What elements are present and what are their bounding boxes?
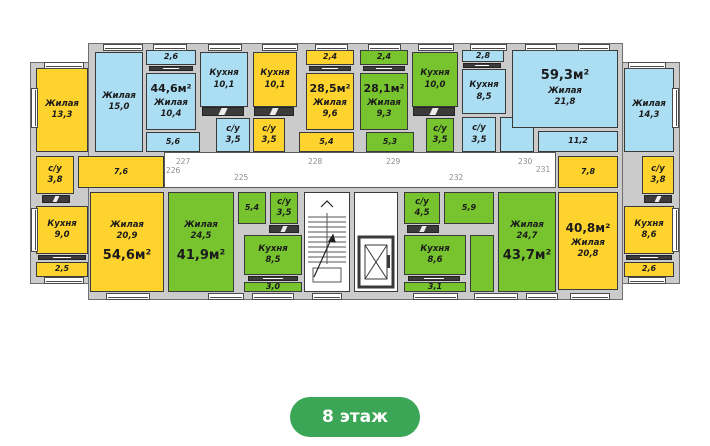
room-label: с/у [48, 164, 62, 175]
apt-593-balcony[interactable]: 2,8 [462, 50, 504, 62]
apt-593-hall[interactable]: 11,2 [538, 131, 618, 152]
room-label: Жилая [110, 220, 144, 231]
room-area: 5,9 [462, 204, 476, 213]
apt-281-balcony[interactable]: 2,4 [360, 50, 408, 65]
apt-446-living2[interactable]: 44,6м² Жилая 10,4 [146, 73, 196, 130]
window [312, 293, 342, 300]
apt-437-balcony[interactable]: 3,1 [404, 282, 466, 292]
room-area: 8,5 [476, 92, 491, 103]
room-area: 14,3 [639, 110, 660, 121]
room-label: Кухня [47, 219, 76, 230]
room-label: с/у [651, 164, 665, 175]
window [628, 277, 666, 284]
apt-285-living[interactable]: 28,5м² Жилая 9,6 [306, 73, 354, 130]
corridor-number-230: 230 [518, 157, 532, 166]
room-area: 3,5 [261, 135, 276, 146]
window [103, 44, 143, 51]
room-label: Жилая [313, 98, 347, 109]
apt-419-total: 41,9м² [177, 249, 225, 264]
apt-437-total: 43,7м² [503, 249, 551, 264]
apt-285-hall[interactable]: 5,4 [299, 132, 354, 152]
window [262, 44, 298, 51]
room-label: Кухня [258, 244, 287, 255]
room-label: с/у [262, 124, 276, 135]
apt-419-living[interactable]: Жилая 24,5 41,9м² [168, 192, 234, 292]
room-area: 21,8 [555, 97, 576, 108]
room-label: с/у [472, 123, 486, 134]
room-area: 5,4 [245, 204, 259, 213]
apt-546-balcony[interactable]: 2,5 [36, 262, 88, 277]
room-label: с/у [277, 197, 291, 208]
window [474, 293, 518, 300]
room-area: 10,1 [265, 80, 286, 91]
room-area: 10,0 [425, 80, 446, 91]
apt-546-kitchen[interactable]: Кухня 9,0 [36, 206, 88, 254]
room-area: 15,0 [109, 102, 130, 113]
room-label: Кухня [420, 68, 449, 79]
balcony-door-bar [408, 276, 460, 281]
corridor-number-228: 228 [308, 157, 322, 166]
window [578, 44, 610, 51]
apt-593-kitchen[interactable]: Кухня 8,5 [462, 69, 506, 114]
window [44, 277, 84, 284]
room-label: Жилая [154, 98, 188, 109]
apt-446-su[interactable]: с/у 3,5 [216, 118, 250, 152]
apt-593-living1[interactable]: 59,3м² Жилая 21,8 [512, 50, 618, 128]
corridor-number-226: 226 [166, 166, 180, 175]
room-area: 7,6 [114, 168, 128, 177]
room-area: 8,5 [265, 255, 280, 266]
apt-419-hall[interactable]: 5,4 [238, 192, 266, 224]
corridor-number-227: 227 [176, 157, 190, 166]
room-area: 10,4 [161, 109, 182, 120]
window [208, 44, 242, 51]
apt-546-total: 54,6м² [103, 249, 151, 264]
balcony-door-bar [363, 66, 405, 71]
balcony-door-bar [309, 66, 351, 71]
apt-419-kitchen[interactable]: Кухня 8,5 [244, 235, 302, 275]
staircase-icon [305, 193, 349, 291]
vent-sill [42, 195, 70, 203]
apt-546-living1[interactable]: Жилая 13,3 [36, 68, 88, 152]
room-area: 3,1 [428, 283, 442, 292]
balcony-door-bar [463, 63, 501, 68]
window [628, 62, 666, 69]
apt-546-hall[interactable]: 7,6 [78, 156, 164, 188]
room-label: Жилая [632, 99, 666, 110]
corridor-number-232: 232 [449, 173, 463, 182]
apt-419-balcony[interactable]: 3,0 [244, 282, 302, 292]
room-area: 2,6 [164, 53, 178, 62]
room-area: 10,1 [214, 80, 235, 91]
window [31, 88, 38, 128]
apt-285-total: 28,5м² [310, 83, 351, 96]
apt-437-kitchen[interactable]: Кухня 8,6 [404, 235, 466, 275]
corridor-number-229: 229 [386, 157, 400, 166]
window [470, 44, 507, 51]
window [252, 293, 294, 300]
room-area: 3,5 [432, 135, 447, 146]
balcony-door-bar [248, 276, 298, 281]
room-area: 3,5 [471, 135, 486, 146]
apt-408-kitchen[interactable]: Кухня 8,6 [624, 206, 674, 254]
window [44, 62, 84, 69]
apt-593-living2[interactable]: Жилая 14,3 [624, 68, 674, 152]
room-label: Кухня [634, 219, 663, 230]
apt-281-su[interactable]: с/у 3,5 [426, 118, 454, 152]
room-area: 4,5 [414, 208, 429, 219]
apt-446-living1[interactable]: Жилая 15,0 [95, 52, 143, 152]
room-area: 3,5 [276, 208, 291, 219]
room-area: 9,0 [54, 230, 69, 241]
room-area: 9,6 [322, 109, 337, 120]
apt-593-su[interactable]: с/у 3,5 [462, 117, 496, 152]
room-area: 2,8 [476, 52, 490, 61]
room-label: Жилая [548, 86, 582, 97]
room-area: 3,8 [650, 175, 665, 186]
apt-446-balcony[interactable]: 2,6 [146, 50, 196, 65]
apt-285-su[interactable]: с/у 3,5 [253, 118, 285, 152]
apt-281-living[interactable]: 28,1м² Жилая 9,3 [360, 73, 408, 130]
room-area: 2,6 [642, 265, 656, 274]
window [153, 44, 187, 51]
apt-437-hall[interactable]: 5,9 [444, 192, 494, 224]
room-area: 5,6 [166, 138, 180, 147]
balcony-door-bar [626, 255, 672, 260]
room-label: Жилая [367, 98, 401, 109]
apt-281-hall[interactable]: 5,3 [366, 132, 414, 152]
window [208, 293, 244, 300]
apt-408-balcony[interactable]: 2,6 [624, 262, 674, 277]
room-area: 3,8 [47, 175, 62, 186]
window [672, 88, 679, 128]
room-label: с/у [226, 124, 240, 135]
room-area: 2,4 [323, 53, 337, 62]
apt-281-total: 28,1м² [364, 83, 405, 96]
window [672, 208, 679, 252]
window [413, 293, 458, 300]
apt-281-kitchen[interactable]: Кухня 10,0 [412, 52, 458, 107]
apt-408-total: 40,8м² [566, 222, 611, 236]
balcony-door-bar [149, 66, 193, 71]
room-area: 20,9 [117, 231, 138, 242]
room-area: 8,6 [427, 255, 442, 266]
room-label: Жилая [510, 220, 544, 231]
room-label: с/у [433, 124, 447, 135]
room-area: 8,6 [641, 230, 656, 241]
window [315, 44, 348, 51]
window [570, 293, 610, 300]
apt-446-kitchen[interactable]: Кухня 10,1 [200, 52, 248, 107]
room-label: с/у [415, 197, 429, 208]
room-area: 5,4 [319, 138, 333, 147]
vent-sill [413, 107, 455, 116]
window [525, 44, 557, 51]
room-label: Кухня [260, 68, 289, 79]
room-label: Кухня [420, 244, 449, 255]
room-area: 24,7 [517, 231, 538, 242]
apt-285-balcony[interactable]: 2,4 [306, 50, 354, 65]
room-area: 7,8 [581, 168, 595, 177]
room-area: 2,5 [55, 265, 69, 274]
room-label: Жилая [571, 238, 605, 249]
room-label: Жилая [45, 99, 79, 110]
window [368, 44, 401, 51]
vent-sill [644, 195, 672, 203]
apt-446-hall[interactable]: 5,6 [146, 132, 200, 152]
room-label: Жилая [102, 91, 136, 102]
elevator-icon [355, 193, 397, 291]
apt-437-living[interactable]: Жилая 24,7 43,7м² [498, 192, 556, 292]
room-area: 9,3 [376, 109, 391, 120]
apt-408-living[interactable]: 40,8м² Жилая 20,8 [558, 192, 618, 290]
room-area: 20,8 [578, 249, 599, 260]
apt-546-living2[interactable]: Жилая 20,9 54,6м² [90, 192, 164, 292]
staircase [304, 192, 350, 292]
window [106, 293, 150, 300]
apt-408-su[interactable]: с/у 3,8 [642, 156, 674, 194]
room-label: Кухня [209, 68, 238, 79]
vent-sill [254, 107, 294, 116]
room-area: 2,4 [377, 53, 391, 62]
corridor [164, 152, 556, 188]
apt-446-total: 44,6м² [151, 83, 192, 96]
apt-593-total: 59,3м² [541, 69, 589, 84]
room-area: 3,0 [266, 283, 280, 292]
floor-plan: 227 226 225 228 229 230 231 232 Жилая 13… [0, 0, 710, 446]
vent-sill [202, 107, 244, 116]
elevator [354, 192, 398, 292]
apt-419-su[interactable]: с/у 3,5 [270, 192, 298, 224]
balcony-door-bar [38, 255, 86, 260]
room-area: 11,2 [568, 137, 588, 146]
corridor-number-225: 225 [234, 173, 248, 182]
apt-437-lobby[interactable] [470, 235, 494, 292]
window [31, 208, 38, 252]
vent-sill [269, 225, 299, 233]
room-label: Кухня [469, 80, 498, 91]
window [418, 44, 454, 51]
window [526, 293, 558, 300]
corridor-number-231: 231 [536, 165, 550, 174]
apt-408-hall[interactable]: 7,8 [558, 156, 618, 188]
room-area: 24,5 [191, 231, 212, 242]
room-area: 5,3 [383, 138, 397, 147]
floor-badge[interactable]: 8 этаж [290, 397, 420, 437]
room-area: 3,5 [225, 135, 240, 146]
room-label: Жилая [184, 220, 218, 231]
apt-285-kitchen[interactable]: Кухня 10,1 [253, 52, 297, 107]
room-area: 13,3 [52, 110, 73, 121]
vent-sill [407, 225, 439, 233]
apt-546-su[interactable]: с/у 3,8 [36, 156, 74, 194]
apt-437-su[interactable]: с/у 4,5 [404, 192, 440, 224]
